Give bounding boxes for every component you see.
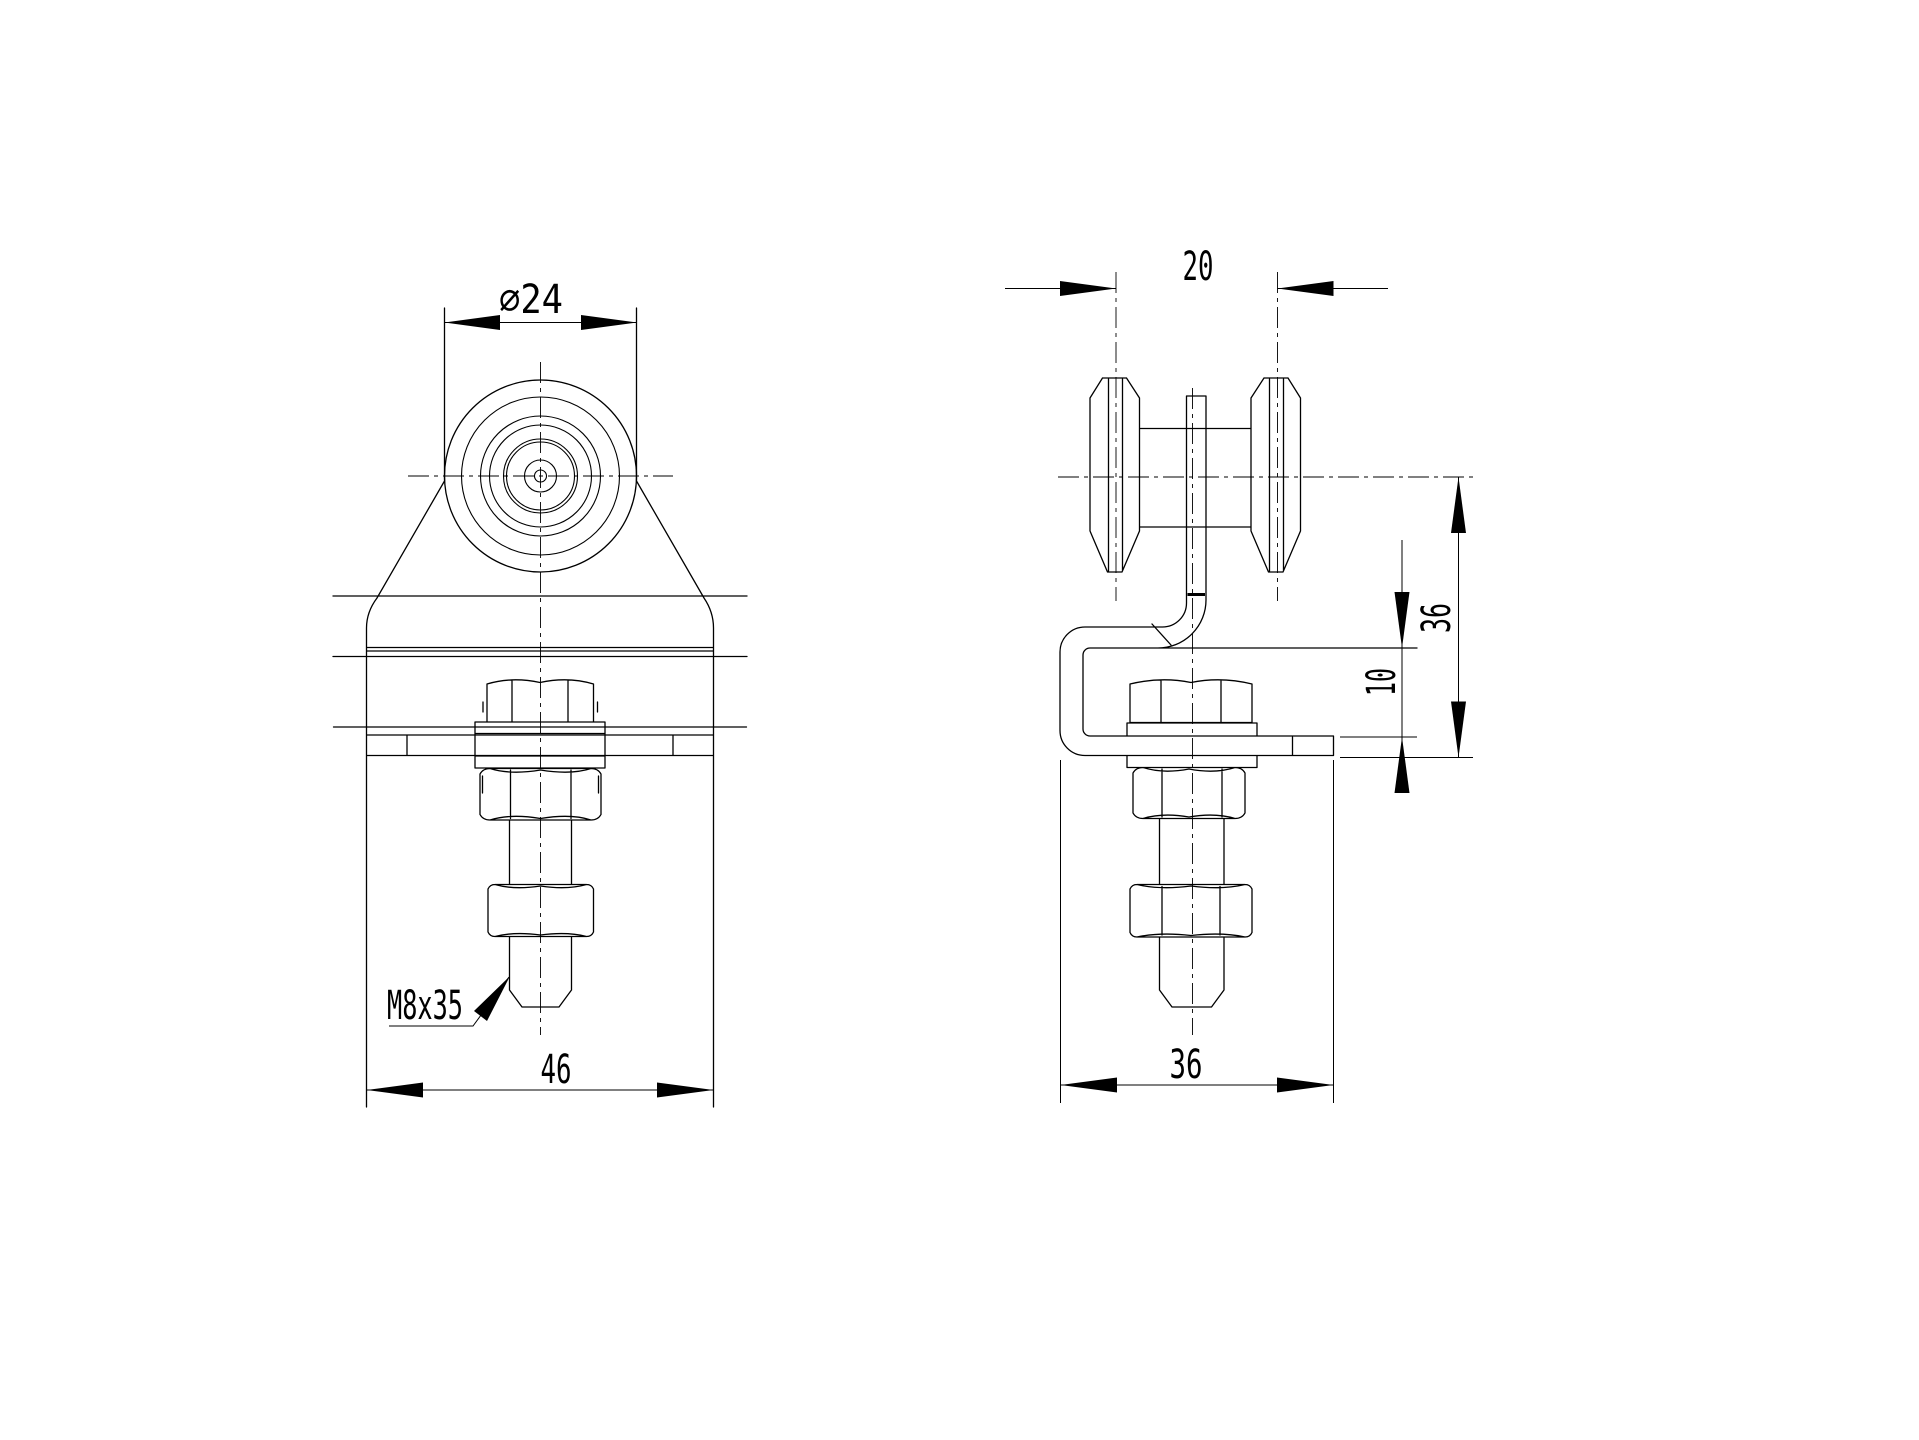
arrowhead-left-icon	[1061, 1078, 1118, 1093]
front-centerlines	[408, 362, 673, 1035]
arrowhead-right-icon	[1277, 1078, 1334, 1093]
leader-arrowhead-icon	[474, 976, 510, 1021]
technical-drawing: ⌀24 46 M8x35 20	[0, 0, 1919, 1440]
thread-callout: M8x35	[387, 976, 510, 1029]
dimension-front-width: 46	[367, 1047, 714, 1098]
dimension-side-bracket-offset-label: 10	[1359, 668, 1405, 696]
arrowhead-left-icon	[367, 1083, 424, 1098]
arrowhead-right-icon	[1060, 281, 1116, 296]
dimension-side-width-label: 36	[1170, 1042, 1203, 1088]
arrowhead-right-icon	[581, 315, 637, 330]
thread-callout-label: M8x35	[387, 983, 463, 1029]
side-view: 20 36 10 36	[1005, 244, 1473, 1103]
dimension-side-roller-width-label: 20	[1183, 244, 1214, 290]
drawing-sheet: ⌀24 46 M8x35 20	[0, 0, 1919, 1440]
front-view: ⌀24 46 M8x35	[333, 277, 747, 1107]
dimension-side-bracket-offset: 10	[1340, 540, 1417, 793]
dimension-front-diameter-label: ⌀24	[499, 277, 563, 323]
arrowhead-down-icon	[1395, 592, 1410, 648]
dimension-side-width: 36	[1061, 760, 1334, 1103]
arrowhead-down-icon	[1451, 702, 1466, 758]
dimension-side-roller-width: 20	[1005, 244, 1388, 296]
arrowhead-up-icon	[1451, 477, 1466, 533]
arrowhead-right-icon	[657, 1083, 714, 1098]
dimension-front-width-label: 46	[541, 1047, 572, 1093]
dimension-side-height: 36	[1340, 477, 1473, 758]
dimension-front-diameter: ⌀24	[445, 277, 637, 330]
arrowhead-left-icon	[445, 315, 501, 330]
arrowhead-up-icon	[1395, 737, 1410, 793]
side-centerlines	[1058, 272, 1473, 1035]
arrowhead-left-icon	[1278, 281, 1334, 296]
dimension-side-height-label: 36	[1414, 603, 1460, 633]
dimension-line	[1340, 540, 1417, 791]
